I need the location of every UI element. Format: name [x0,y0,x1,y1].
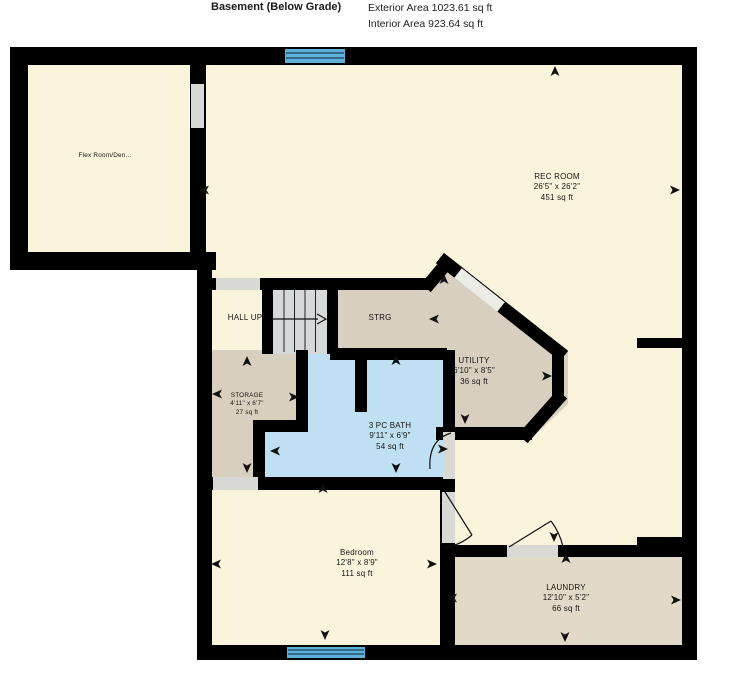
room-area: 36 sq ft [453,377,495,387]
room-name: UTILITY [453,356,495,366]
wall-outer-right [682,47,697,660]
room-dims: 12'8" x 8'9" [336,558,378,568]
room-name: Bedroom [336,548,378,558]
wall-storage-right [296,350,308,430]
wall-stairs-left [262,288,273,354]
room-label-bath: 3 PC BATH 9'11" x 6'9" 54 sq ft [369,421,412,452]
room-label-storage: STORAGE 4'11" x 6'7" 27 sq ft [230,392,263,417]
room-label-utility: UTILITY 6'10" x 8'5" 36 sq ft [453,356,495,387]
bottom-window [287,647,365,658]
room-area: 54 sq ft [369,442,412,452]
wall-flex-bottom [10,252,216,270]
wall-strg-bottom [330,348,447,360]
flex-window [191,84,204,128]
bedroom-door-gap [442,492,455,543]
wall-recroom-stub [637,338,687,348]
room-name: STORAGE [230,392,263,400]
floor-plan-page: Basement (Below Grade) Exterior Area 102… [0,0,739,695]
bath-door-gap [443,432,455,479]
room-area: 111 sq ft [336,569,378,579]
room-dims: 9'11" x 6'9" [369,431,412,441]
room-name: REC ROOM [534,172,580,182]
room-dims: 6'10" x 8'5" [453,366,495,376]
room-area: 27 sq ft [230,409,263,417]
room-area: 66 sq ft [543,604,589,614]
wall-stairs-right [327,288,338,354]
room-dims: 4'11" x 6'7" [230,400,263,408]
floor-plan-drawing [0,0,739,695]
stairs-area [272,286,327,354]
room-name: Flex Room/Den... [79,152,132,160]
wall-bath-stub [355,350,367,412]
room-label-rec-room: REC ROOM 26'5" x 26'2" 451 sq ft [534,172,580,203]
room-label-hall-up: HALL UP [228,313,262,323]
wall-outer-top [10,47,697,65]
room-name: STRG [368,313,391,323]
top-window [285,49,345,63]
wall-outer-left-upper [10,47,28,270]
room-label-bedroom: Bedroom 12'8" x 8'9" 111 sq ft [336,548,378,579]
room-area: 451 sq ft [534,193,580,203]
room-name: LAUNDRY [543,583,589,593]
room-dims: 12'10" x 5'2" [543,593,589,603]
room-dims: 26'5" x 26'2" [534,182,580,192]
storage-bedroom-opening [213,477,258,490]
laundry-door-gap [507,545,558,557]
room-name: 3 PC BATH [369,421,412,431]
wall-bath-left [253,420,265,482]
room-label-flex-room: Flex Room/Den... [79,152,132,160]
room-label-laundry: LAUNDRY 12'10" x 5'2" 66 sq ft [543,583,589,614]
wall-laundry-stub [637,537,687,547]
room-name: HALL UP [228,313,262,323]
hall-opening [216,278,260,290]
wall-outer-bottom [197,645,697,660]
wall-outer-left-lower [197,252,212,660]
room-label-strg: STRG [368,313,391,323]
